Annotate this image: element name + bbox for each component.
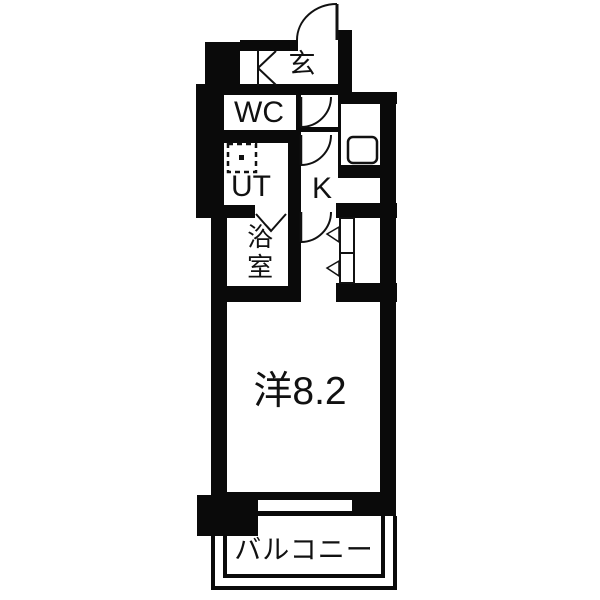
kitchen-door-swing-icon <box>301 135 331 165</box>
entrance-label: 玄 <box>282 50 322 78</box>
wc-label: WC <box>222 97 296 129</box>
washing-machine-icon <box>228 144 256 172</box>
balcony-label: バルコニー <box>211 536 397 564</box>
wc-door-swing-icon <box>301 97 331 127</box>
closet-open-direction-icons <box>327 227 339 276</box>
bath-label: 浴室 <box>240 219 276 287</box>
kitchen-label: K <box>299 173 345 205</box>
shoe-cabinet-icon <box>258 50 276 86</box>
western-room-label: 洋8.2 <box>207 372 393 413</box>
entrance-door-swing-icon <box>297 4 337 40</box>
fixtures-layer <box>0 0 600 600</box>
kitchen-sink-icon <box>348 137 377 163</box>
utility-label: UT <box>214 171 288 203</box>
room-door-swing-icon <box>301 212 331 242</box>
closet-door-panels-icon <box>340 218 354 283</box>
floor-plan: 玄 WC UT K 浴室 洋8.2 バルコニー <box>0 0 600 600</box>
